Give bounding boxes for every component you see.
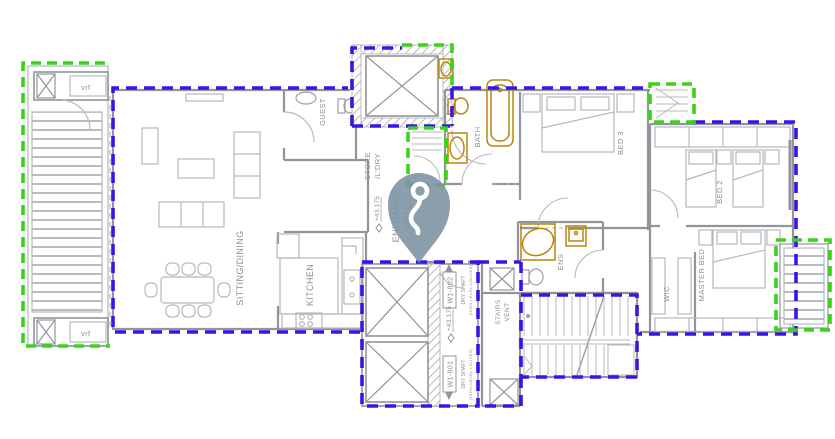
nightstand [765, 150, 779, 164]
nightstand [617, 94, 634, 112]
bed3-label: BED 3 [616, 131, 625, 155]
sitting-dining-label: SITTING/DINING [235, 230, 245, 305]
kitchen-label: KITCHEN [305, 264, 315, 306]
pin-body[interactable] [388, 173, 450, 263]
level-marker-shaft: +43.175 [446, 306, 454, 342]
kitchen-sink [344, 270, 360, 304]
guest-sink [296, 92, 316, 104]
bed2-label: BED 2 [715, 180, 724, 204]
balcony-left: vrf vrf [28, 66, 110, 346]
ens-sink [566, 226, 586, 246]
w1-802-id: W1-802 [448, 277, 455, 304]
store-label-2: /L'DRY [373, 153, 382, 179]
master-bed-bed [713, 230, 765, 288]
kitchen [277, 234, 363, 328]
w1-801-id: W1-801 [448, 361, 455, 388]
stove [296, 313, 322, 328]
bed2-door-arc [650, 190, 678, 218]
bed2-single-bed-2 [733, 150, 763, 207]
ens-label: ENS [556, 254, 565, 271]
shaft-level-text: +43.175 [446, 306, 453, 331]
armchair [142, 128, 158, 164]
master-bedroom [652, 230, 793, 332]
floor-plan: vrf vrf SITTING/DINING [0, 0, 835, 439]
floor-plan-drawing: vrf vrf SITTING/DINING [0, 0, 835, 439]
sofa-horizontal [159, 202, 224, 227]
master-door-arc [575, 250, 603, 278]
vrf-bottom-label: vrf [81, 329, 91, 338]
level-marker-hall: +43.175 [374, 196, 382, 232]
ensuite [518, 223, 586, 285]
shaft-label-w1-801: W1-801 DRY SHAFT [HIGH-LEVEL LOUVER] [443, 348, 473, 400]
hall-level-text: +43.175 [374, 196, 381, 221]
wic-label: WIC [662, 286, 671, 302]
nightstand [699, 230, 712, 245]
balcony-right [780, 244, 828, 328]
bathroom [448, 80, 513, 163]
master-bed-label: MASTER BED [697, 248, 706, 301]
sofa-vertical [234, 132, 260, 198]
nightstand [717, 150, 731, 164]
stairs-label-1: STAIRS [495, 299, 502, 325]
w1-801-type: DRY SHAFT [461, 359, 467, 388]
wic-closets [652, 258, 691, 314]
dining-table-set [145, 263, 230, 317]
guest-door-arc [284, 112, 314, 142]
nightstand [523, 94, 540, 112]
ens-toilet [522, 269, 543, 285]
nightstand [767, 230, 780, 245]
key-location-pin[interactable] [388, 173, 450, 263]
bath-label: BATH [473, 126, 482, 147]
w1-802-type: DRY SHAFT [461, 275, 467, 304]
stairs-shaft-boxes [490, 268, 518, 405]
vrf-unit-top: vrf [34, 72, 108, 100]
guest-label: GUEST [318, 98, 327, 126]
bed3-bed [542, 94, 614, 152]
coffee-table [178, 159, 214, 178]
w1-801-note: [HIGH-LEVEL LOUVER] [468, 348, 473, 399]
store-label-1: STORE [363, 152, 372, 180]
staircase [520, 296, 634, 375]
bed2-single-bed-1 [686, 150, 716, 207]
ac-louver-topright [656, 88, 688, 118]
tv-console [186, 94, 223, 101]
w1-802-note: [HIGH LEVEL LOUVER] [468, 265, 473, 316]
vrf-unit-bottom: vrf [34, 318, 108, 346]
lift-shaft-top [352, 45, 452, 127]
vrf-top-label: vrf [81, 83, 91, 92]
ens-corner-tub [521, 224, 555, 260]
stairs-label-2: VENT [504, 303, 511, 322]
